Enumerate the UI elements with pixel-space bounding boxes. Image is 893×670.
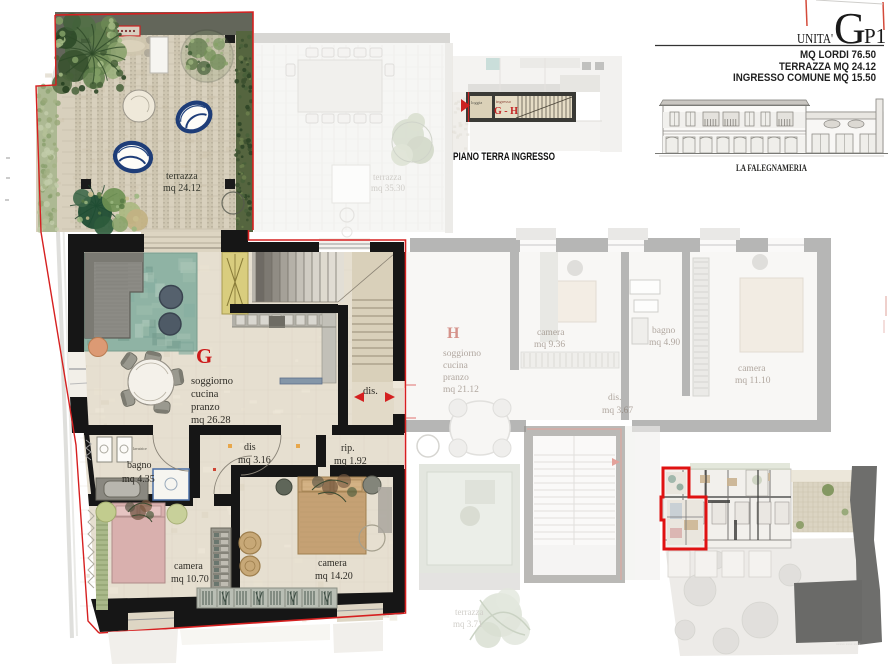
svg-text:dis.: dis. (608, 393, 621, 403)
svg-text:cucina: cucina (443, 361, 469, 371)
svg-text:mq 4.90: mq 4.90 (649, 338, 680, 348)
svg-text:mq 24.12: mq 24.12 (163, 183, 201, 194)
svg-text:mq 1.92: mq 1.92 (334, 456, 367, 467)
svg-text:mq 10.70: mq 10.70 (171, 574, 209, 585)
svg-text:ingresso: ingresso (496, 99, 512, 104)
svg-text:camera: camera (174, 561, 203, 572)
svg-text:mq 21.12: mq 21.12 (443, 385, 479, 395)
svg-text:mq 9.36: mq 9.36 (534, 340, 565, 350)
svg-text:mq 3.16: mq 3.16 (238, 455, 271, 466)
svg-text:loggia: loggia (471, 100, 482, 105)
svg-text:camera: camera (738, 364, 766, 374)
svg-text:mq 14.20: mq 14.20 (315, 571, 353, 582)
svg-text:camera: camera (318, 558, 347, 569)
svg-text:mq 3.67: mq 3.67 (602, 406, 633, 416)
svg-text:INGRESSO COMUNE MQ 15.50: INGRESSO COMUNE MQ 15.50 (733, 72, 876, 84)
svg-text:mq 4.35: mq 4.35 (122, 474, 155, 485)
svg-text:bagno: bagno (652, 326, 675, 336)
svg-text:soggiorno: soggiorno (191, 376, 233, 387)
svg-text:pranzo: pranzo (191, 402, 220, 413)
svg-text:mq 11.10: mq 11.10 (735, 376, 771, 386)
svg-text:pranzo: pranzo (443, 373, 469, 383)
svg-text:terrazza: terrazza (455, 607, 483, 617)
svg-text:lavatrice: lavatrice (133, 446, 147, 451)
svg-text:cucina: cucina (191, 389, 219, 400)
svg-text:terrazza: terrazza (373, 172, 401, 182)
svg-text:LA FALEGNAMERIA: LA FALEGNAMERIA (736, 163, 807, 173)
svg-text:G - H: G - H (494, 106, 518, 117)
svg-text:camera: camera (537, 328, 565, 338)
svg-text:MQ LORDI 76.50: MQ LORDI 76.50 (800, 49, 876, 61)
svg-text:soggiorno: soggiorno (443, 349, 481, 359)
svg-text:H: H (447, 325, 460, 342)
svg-text:xxxxx xxxx xxxx: xxxxx xxxx xxxx (836, 642, 861, 646)
svg-text:rip.: rip. (341, 443, 355, 454)
svg-text:UNITA': UNITA' (797, 31, 833, 46)
svg-text:P1: P1 (864, 24, 886, 48)
svg-text:PIANO TERRA INGRESSO: PIANO TERRA INGRESSO (453, 151, 555, 163)
svg-text:bagno: bagno (127, 460, 151, 471)
svg-text:dis: dis (244, 442, 256, 453)
svg-text:mq 3.71: mq 3.71 (453, 619, 483, 629)
svg-text:mq 35.30: mq 35.30 (371, 183, 406, 193)
svg-text:dis.: dis. (363, 386, 378, 397)
svg-text:G: G (196, 344, 212, 368)
svg-text:mq 26.28: mq 26.28 (191, 415, 231, 426)
svg-text:terrazza: terrazza (166, 171, 198, 182)
